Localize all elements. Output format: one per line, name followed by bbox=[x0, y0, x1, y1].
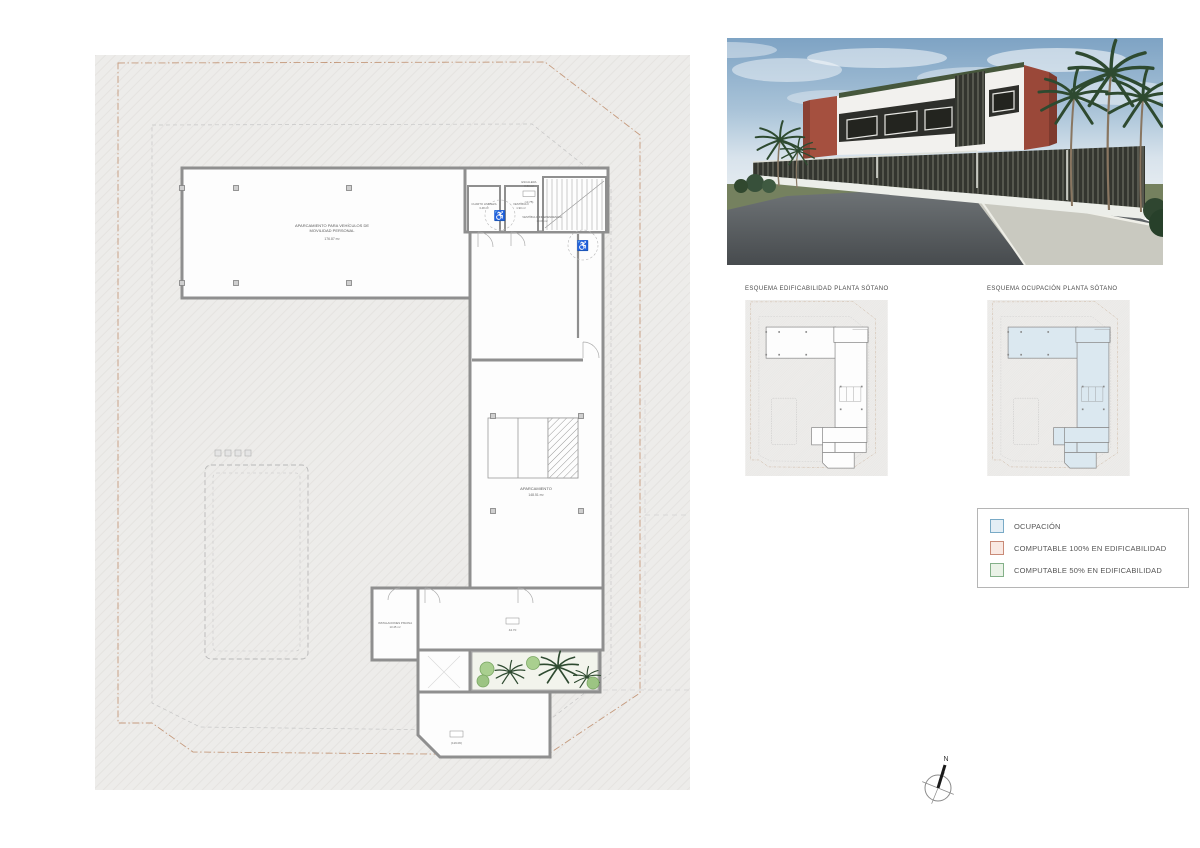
legend-row-computable-50: COMPUTABLE 50% EN EDIFICABILIDAD bbox=[978, 563, 1188, 577]
marker-courtyard: 44.70 bbox=[509, 628, 517, 632]
legend-label-computable-50: COMPUTABLE 50% EN EDIFICABILIDAD bbox=[1014, 566, 1162, 575]
schematic-title-ocupacion: ESQUEMA OCUPACIÓN PLANTA SÓTANO bbox=[987, 286, 1117, 292]
legend-label-ocupacion: OCUPACIÓN bbox=[1014, 522, 1061, 531]
marker-lower-terrace: (119.06) bbox=[451, 741, 462, 745]
wheelchair-icon: ♿ bbox=[494, 209, 506, 222]
room-parking-wing bbox=[470, 232, 603, 588]
label-pmr-area: 176.87 m² bbox=[324, 237, 340, 241]
label-pmr-2: MOVILIDAD PERSONAL bbox=[310, 228, 356, 233]
legend-row-computable-100: COMPUTABLE 100% EN EDIFICABILIDAD bbox=[978, 541, 1188, 555]
building-3d-render bbox=[727, 38, 1163, 265]
legend: OCUPACIÓN COMPUTABLE 100% EN EDIFICABILI… bbox=[977, 508, 1189, 588]
legend-label-computable-100: COMPUTABLE 100% EN EDIFICABILIDAD bbox=[1014, 544, 1166, 553]
planter-plants bbox=[472, 651, 601, 690]
architectural-sheet: ♿ ♿ APARCAMIENTO PARA VEHÍCULOS DE MOVIL… bbox=[0, 0, 1200, 848]
label-pool-plant-area: 13.45 m² bbox=[389, 625, 400, 629]
hatched-bay bbox=[548, 418, 578, 478]
label-stairs-area: 8.80 m² bbox=[524, 184, 534, 188]
compass-north-label: N bbox=[943, 756, 948, 763]
legend-swatch-ocupacion bbox=[990, 519, 1004, 533]
schematic-ocupacion bbox=[987, 300, 1130, 476]
schematic-title-edificabilidad: ESQUEMA EDIFICABILIDAD PLANTA SÓTANO bbox=[745, 286, 889, 292]
ramp-area bbox=[418, 650, 470, 692]
label-indep-vestibule-area: 10.06 m² bbox=[536, 219, 547, 223]
legend-swatch-computable-100 bbox=[990, 541, 1004, 555]
label-parking-area: 148.51 m² bbox=[528, 493, 544, 497]
basement-floor-plan: ♿ ♿ APARCAMIENTO PARA VEHÍCULOS DE MOVIL… bbox=[95, 55, 690, 790]
label-cleaning-area: 3.48 m² bbox=[479, 206, 489, 210]
legend-row-ocupacion: OCUPACIÓN bbox=[978, 519, 1188, 533]
label-vestibule-area: 1.90 m² bbox=[516, 206, 526, 210]
room-lower-terrace bbox=[418, 692, 550, 757]
label-parking: APARCAMIENTO bbox=[520, 486, 552, 491]
room-pmr-parking bbox=[182, 168, 473, 298]
marker-stairs: (-0.75) bbox=[525, 200, 534, 204]
legend-swatch-computable-50 bbox=[990, 563, 1004, 577]
north-compass-icon: N bbox=[913, 752, 965, 812]
wheelchair-icon: ♿ bbox=[577, 239, 589, 252]
schematic-edificabilidad bbox=[745, 300, 888, 476]
